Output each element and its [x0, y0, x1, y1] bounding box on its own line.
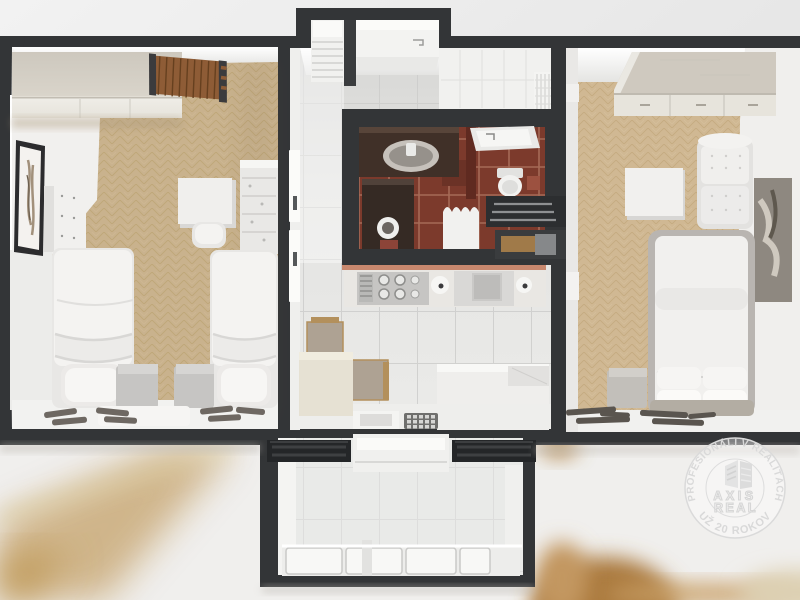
svg-text:REAL: REAL	[714, 501, 758, 515]
